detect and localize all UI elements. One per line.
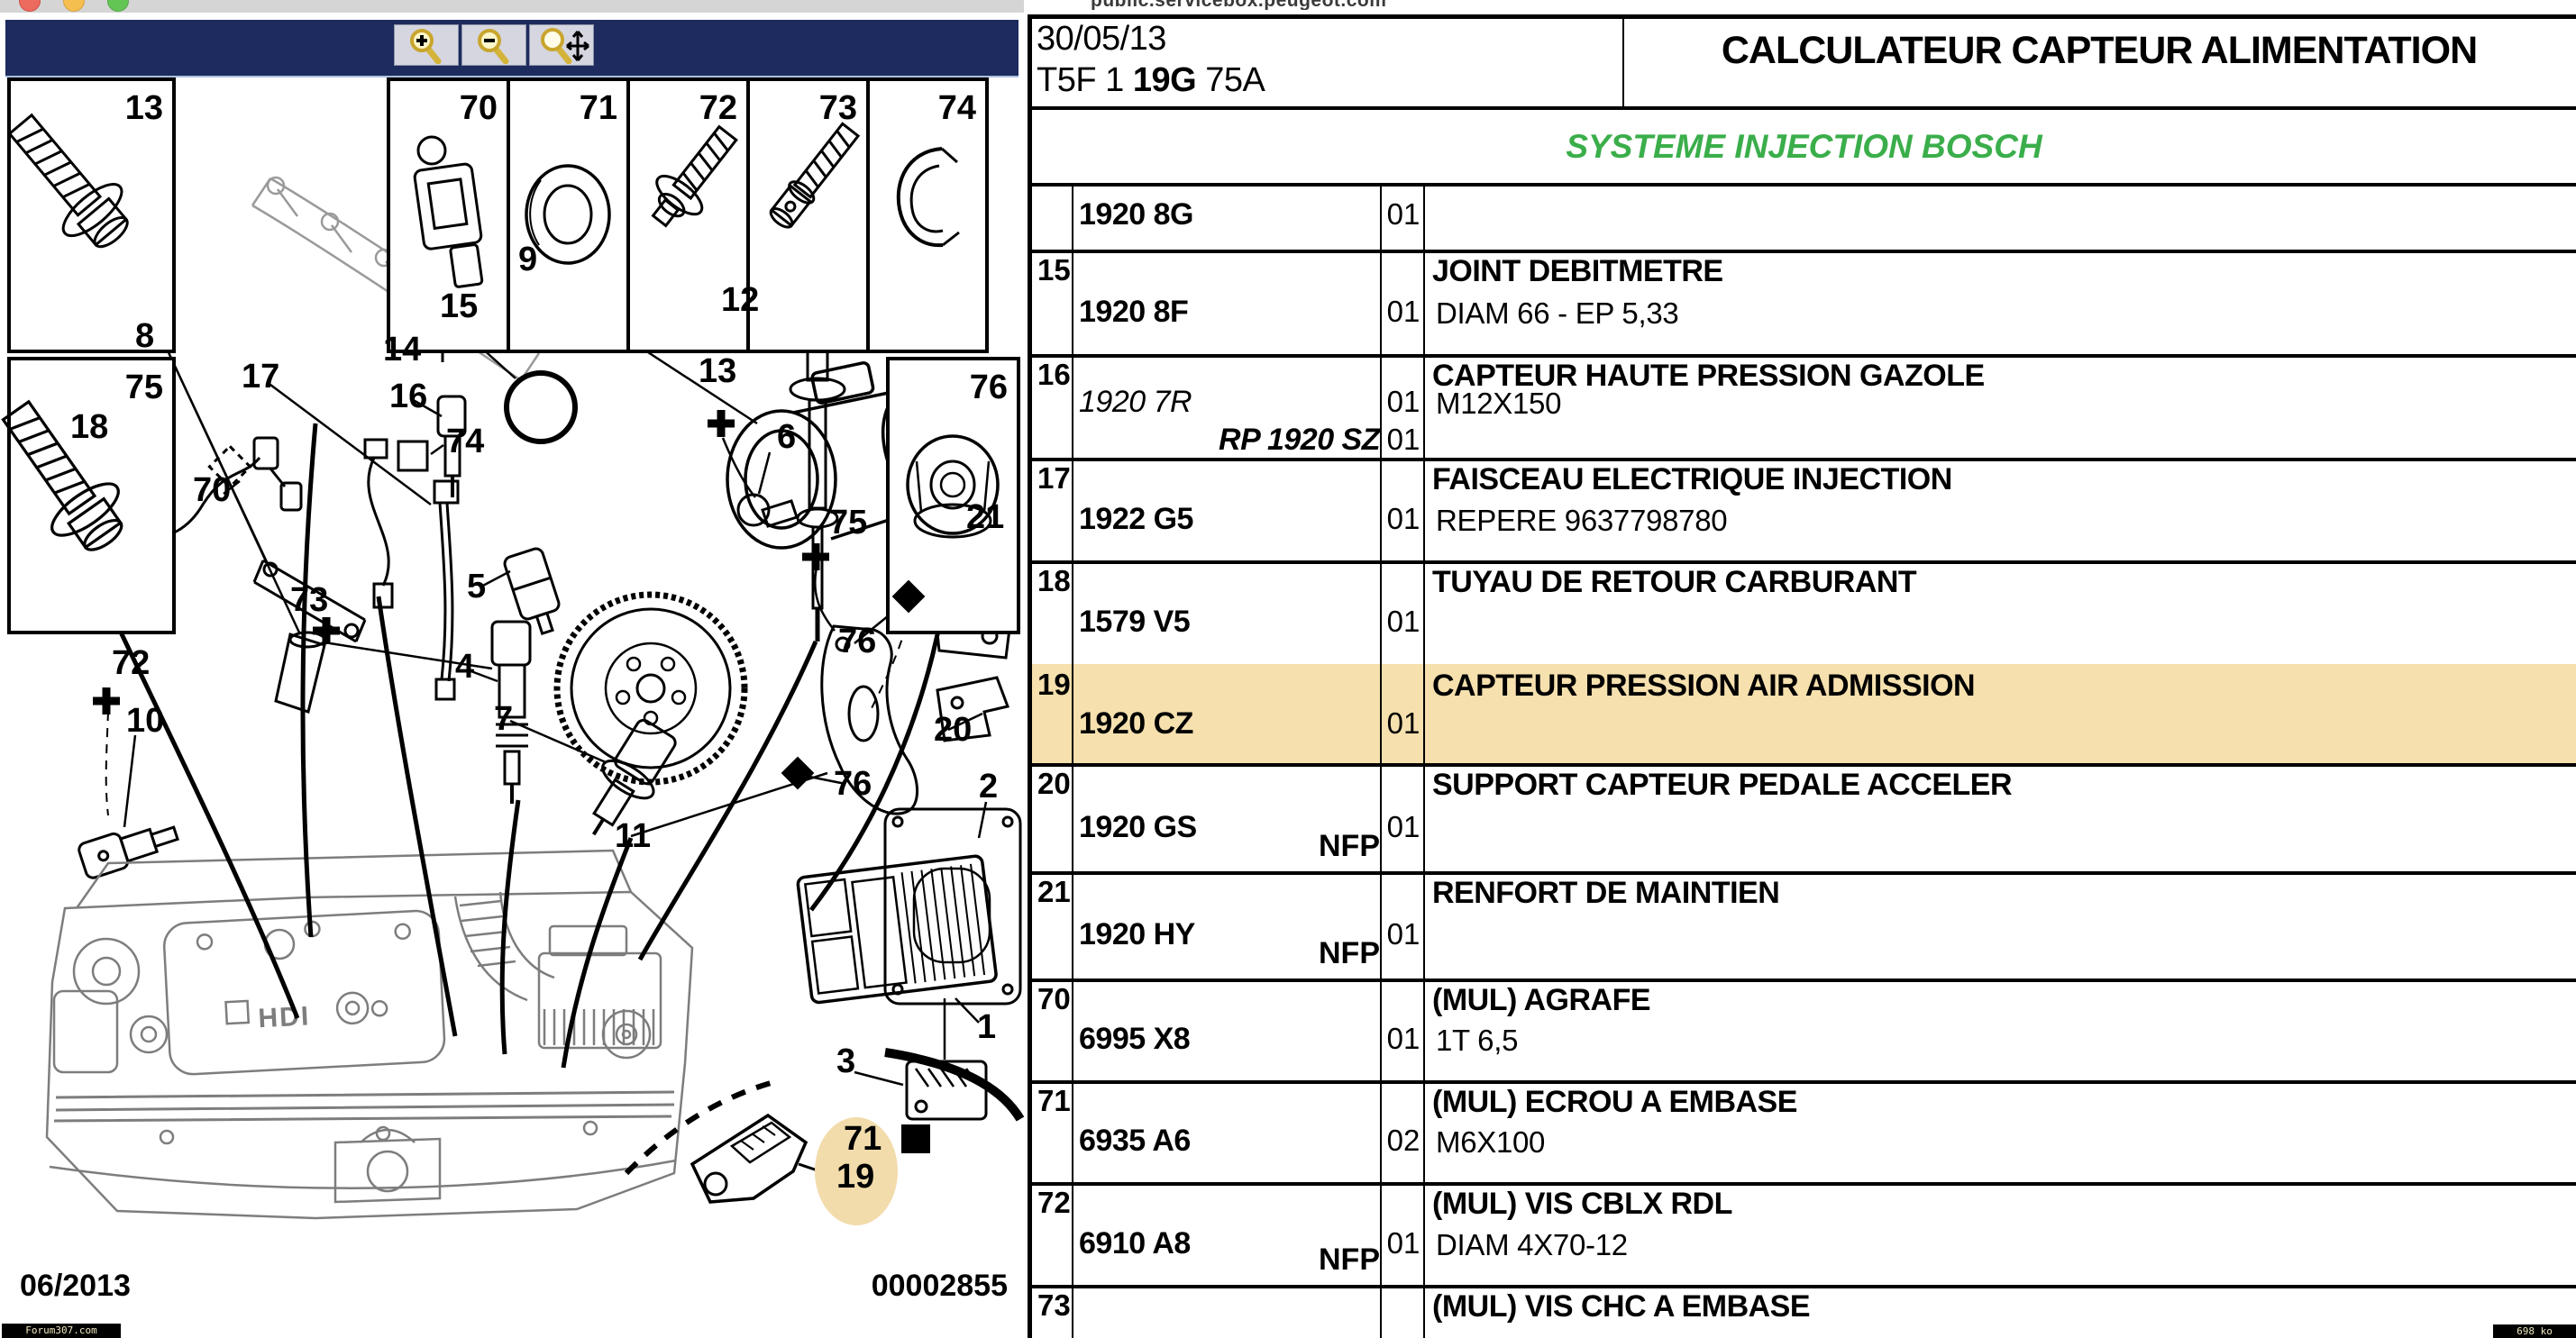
diagram-callout-19[interactable]: 19 <box>836 1158 874 1196</box>
nfp-flag: NFP <box>1039 936 1380 971</box>
part-replacement-reference: RP 1920 SZ <box>1039 423 1380 458</box>
diagram-callout-9[interactable]: 9 <box>518 241 537 278</box>
table-row[interactable]: 1920 8G01 <box>1032 183 2576 250</box>
part-title: CAPTEUR PRESSION AIR ADMISSION <box>1432 669 1975 704</box>
part-quantity: 01 <box>1382 423 1425 457</box>
part-callout-number: 19 <box>1037 668 1071 702</box>
column-divider <box>1072 664 1073 763</box>
thumbnail-label: 73 <box>819 89 857 127</box>
part-title: JOINT DEBITMETRE <box>1432 254 1723 289</box>
parts-diagram: HDI <box>0 0 1028 1338</box>
table-row[interactable]: 191920 CZ01CAPTEUR PRESSION AIR ADMISSIO… <box>1032 664 2576 763</box>
part-title: (MUL) AGRAFE <box>1432 983 1650 1018</box>
part-quantity: 01 <box>1382 502 1425 536</box>
part-title: (MUL) VIS CBLX RDL <box>1432 1187 1732 1222</box>
part-quantity: 01 <box>1382 197 1425 232</box>
part-spec: 1T 6,5 <box>1436 1024 1518 1058</box>
diagram-callout-15[interactable]: 15 <box>440 287 478 325</box>
part-spec: DIAM 66 - EP 5,33 <box>1436 296 1678 331</box>
thumbnail-label: 75 <box>125 369 163 406</box>
system-subtitle: SYSTEME INJECTION BOSCH <box>1032 110 2576 183</box>
part-title: (MUL) ECROU A EMBASE <box>1432 1085 1797 1120</box>
diagram-callout-72[interactable]: 72 <box>112 644 150 682</box>
table-row[interactable]: 181579 V501TUYAU DE RETOUR CARBURANT <box>1032 560 2576 664</box>
diagram-callout-4[interactable]: 4 <box>455 648 474 686</box>
column-divider <box>1072 458 1073 560</box>
diagram-toolbar <box>5 20 1019 77</box>
diagram-callout-70[interactable]: 70 <box>193 471 231 509</box>
part-spec: M12X150 <box>1436 387 1561 421</box>
table-row[interactable]: 726910 A8NFP01(MUL) VIS CBLX RDLDIAM 4X7… <box>1032 1182 2576 1285</box>
window-titlebar <box>0 0 1024 13</box>
part-reference: 6995 X8 <box>1079 1022 1190 1057</box>
part-quantity: 01 <box>1382 605 1425 639</box>
filesize-badge: 698 ko <box>2493 1324 2576 1338</box>
square-marker-icon <box>901 1124 930 1153</box>
column-divider <box>1072 183 1073 250</box>
thumbnail-box: 75 <box>9 359 174 633</box>
part-callout-number: 70 <box>1037 982 1071 1016</box>
zoom-pan-icon <box>533 28 590 64</box>
app-window: HDI <box>0 0 2576 1338</box>
engine-bay-sketch <box>47 851 692 1218</box>
diamond-marker-icon <box>781 757 815 790</box>
table-row[interactable]: 73(MUL) VIS CHC A EMBASE <box>1032 1285 2576 1338</box>
part-reference: 6935 A6 <box>1079 1124 1191 1159</box>
table-row[interactable]: 171922 G501FAISCEAU ELECTRIQUE INJECTION… <box>1032 458 2576 560</box>
traffic-light-close[interactable] <box>19 0 41 12</box>
column-divider <box>1072 250 1073 354</box>
nfp-flag: NFP <box>1039 829 1380 864</box>
plus-marker-icon <box>708 410 735 437</box>
doc-date: 30/05/13 <box>1037 20 1166 59</box>
nfp-flag: NFP <box>1039 1242 1380 1278</box>
diagram-callout-73[interactable]: 73 <box>290 581 328 619</box>
part-reference: 1579 V5 <box>1079 605 1190 640</box>
diagram-callout-14[interactable]: 14 <box>383 331 421 369</box>
diagram-callout-75[interactable]: 75 <box>829 504 867 542</box>
table-row[interactable]: 151920 8F01JOINT DEBITMETREDIAM 66 - EP … <box>1032 250 2576 354</box>
part-callout-number: 73 <box>1037 1288 1071 1323</box>
part-callout-number: 71 <box>1037 1084 1071 1118</box>
part-quantity: 01 <box>1382 1226 1425 1261</box>
thumbnail-box: 74 <box>868 79 987 351</box>
zoom-in-icon <box>397 28 455 64</box>
part-sketch-oring-15 <box>507 373 575 441</box>
leader-curves <box>106 389 1020 1173</box>
part-reference: 1920 CZ <box>1079 706 1193 742</box>
part-title: RENFORT DE MAINTIEN <box>1432 876 1779 911</box>
doc-model-code: T5F 1 19G 75A <box>1037 61 1265 100</box>
part-reference: 1920 7R <box>1079 385 1192 420</box>
part-sketch-10 <box>78 815 181 879</box>
diagram-callout-3[interactable]: 3 <box>836 1042 855 1080</box>
part-sketch-map-sensor-19 <box>692 1115 806 1202</box>
part-quantity: 01 <box>1382 810 1425 844</box>
diagram-callout-71[interactable]: 71 <box>844 1120 882 1158</box>
open-square-marker-icon <box>398 441 427 470</box>
diagram-footer-date: 06/2013 <box>20 1269 131 1303</box>
diagram-callout-13[interactable]: 13 <box>699 352 736 390</box>
diagram-panel: HDI <box>0 0 1028 1338</box>
table-row[interactable]: 201920 GSNFP01SUPPORT CAPTEUR PEDALE ACC… <box>1032 763 2576 871</box>
page-title: CALCULATEUR CAPTEUR ALIMENTATION <box>1622 29 2576 73</box>
diagram-callout-12[interactable]: 12 <box>721 281 759 319</box>
part-callout-number: 18 <box>1037 564 1071 598</box>
diagram-callout-8[interactable]: 8 <box>135 317 154 355</box>
table-row[interactable]: 211920 HYNFP01RENFORT DE MAINTIEN <box>1032 871 2576 978</box>
part-callout-number: 21 <box>1037 875 1071 909</box>
part-reference: 1920 8F <box>1079 295 1188 330</box>
table-row[interactable]: 716935 A602(MUL) ECROU A EMBASEM6X100 <box>1032 1080 2576 1182</box>
diagram-callout-2[interactable]: 2 <box>979 768 998 806</box>
part-callout-number: 20 <box>1037 767 1071 801</box>
part-callout-number: 15 <box>1037 253 1071 287</box>
part-title: (MUL) VIS CHC A EMBASE <box>1432 1289 1810 1324</box>
diagram-callout-16[interactable]: 16 <box>389 378 427 415</box>
zoom-in-button[interactable] <box>394 24 459 66</box>
part-quantity: 01 <box>1382 706 1425 741</box>
engine-cover-text: HDI <box>258 1001 311 1033</box>
column-divider <box>1072 1285 1073 1338</box>
column-divider <box>1423 1285 1425 1338</box>
diagram-callout-5[interactable]: 5 <box>467 568 486 605</box>
thumbnail-label: 76 <box>970 369 1008 406</box>
part-reference: 1920 8G <box>1079 197 1193 232</box>
diagram-callout-21[interactable]: 21 <box>966 498 1004 536</box>
column-divider <box>1380 1285 1382 1338</box>
part-quantity: 02 <box>1382 1124 1425 1158</box>
thumbnail-label: 74 <box>938 89 976 127</box>
table-top-border <box>1028 14 2576 19</box>
part-reference: 1922 G5 <box>1079 502 1193 537</box>
traffic-light-minimize[interactable] <box>63 0 85 12</box>
part-spec: REPERE 9637798780 <box>1436 504 1727 538</box>
column-divider <box>1072 1080 1073 1182</box>
diagram-callout-17[interactable]: 17 <box>242 358 279 396</box>
watermark-badge: Forum307.com <box>2 1324 121 1338</box>
traffic-light-zoom[interactable] <box>107 0 129 12</box>
thumbnail-box: 73 <box>748 79 868 351</box>
diagram-callout-76[interactable]: 76 <box>834 765 872 803</box>
zoom-out-button[interactable] <box>461 24 526 66</box>
part-quantity: 01 <box>1382 295 1425 329</box>
part-callout-number: 16 <box>1037 358 1071 392</box>
thumbnail-label: 72 <box>699 89 737 127</box>
part-callout-number: 17 <box>1037 461 1071 496</box>
thumbnail-label: 70 <box>460 89 498 127</box>
table-row[interactable]: 706995 X801(MUL) AGRAFE1T 6,5 <box>1032 978 2576 1080</box>
diagram-callout-11[interactable]: 11 <box>615 817 651 855</box>
part-title: FAISCEAU ELECTRIQUE INJECTION <box>1432 462 1952 497</box>
part-quantity: 01 <box>1382 917 1425 951</box>
plus-marker-icon <box>802 543 829 570</box>
diagram-doc-number: 00002855 <box>872 1269 1008 1303</box>
column-divider <box>1072 560 1073 664</box>
part-quantity: 01 <box>1382 385 1425 419</box>
column-divider <box>1072 978 1073 1080</box>
thumbnail-box: 13 <box>9 79 174 351</box>
part-title: SUPPORT CAPTEUR PEDALE ACCELER <box>1432 768 2012 803</box>
table-row[interactable]: 161920 7RRP 1920 SZ0101CAPTEUR HAUTE PRE… <box>1032 354 2576 458</box>
diagram-callout-74[interactable]: 74 <box>446 423 484 460</box>
browser-url-text: public.servicebox.peugeot.com <box>1091 0 1514 10</box>
diagram-callout-1[interactable]: 1 <box>977 1008 996 1046</box>
part-callout-number: 72 <box>1037 1186 1071 1220</box>
diagram-callout-20[interactable]: 20 <box>934 711 972 749</box>
part-quantity: 01 <box>1382 1022 1425 1056</box>
part-sketch-5 <box>503 547 566 638</box>
diagram-callout-7[interactable]: 7 <box>494 700 513 738</box>
part-spec: DIAM 4X70-12 <box>1436 1228 1628 1262</box>
zoom-pan-button[interactable] <box>529 24 594 66</box>
diagram-callout-6[interactable]: 6 <box>777 418 796 456</box>
part-spec: M6X100 <box>1436 1125 1545 1160</box>
diagram-callout-76[interactable]: 76 <box>838 623 876 660</box>
diagram-callout-18[interactable]: 18 <box>70 408 108 446</box>
diagram-callout-10[interactable]: 10 <box>126 702 164 740</box>
plus-marker-icon <box>313 617 340 644</box>
zoom-out-icon <box>465 28 523 64</box>
part-sketch-ecu-1 <box>797 855 997 1003</box>
part-title: TUYAU DE RETOUR CARBURANT <box>1432 565 1916 600</box>
parts-table-panel: public.servicebox.peugeot.com 30/05/13 T… <box>1028 0 2576 1338</box>
thumbnail-label: 71 <box>580 89 617 127</box>
plus-marker-icon <box>93 687 120 715</box>
thumbnail-label: 13 <box>125 89 163 127</box>
